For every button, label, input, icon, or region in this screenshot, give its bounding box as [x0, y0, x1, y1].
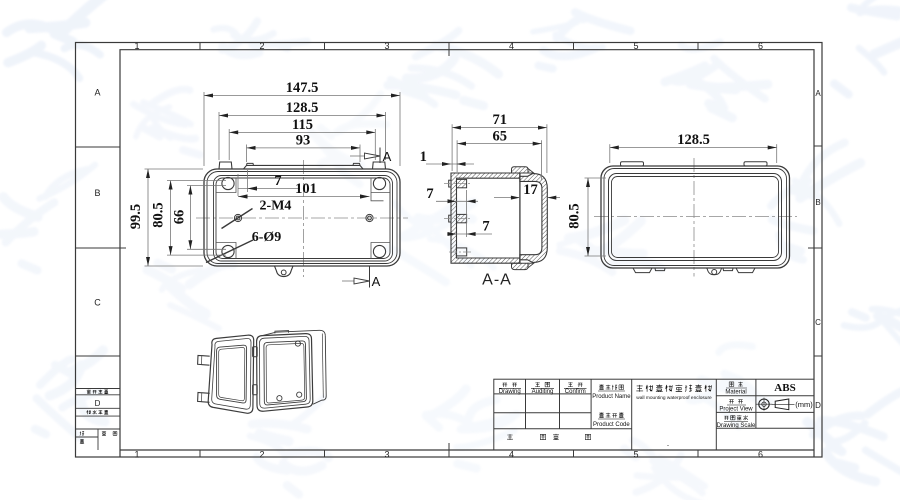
- svg-text:D: D: [95, 399, 101, 408]
- svg-text:101: 101: [295, 181, 317, 197]
- svg-text:D: D: [815, 401, 821, 410]
- svg-text:128.5: 128.5: [677, 132, 710, 148]
- svg-text:7: 7: [274, 173, 281, 189]
- svg-text:Confirm: Confirm: [565, 389, 586, 395]
- svg-text:ABS: ABS: [774, 382, 795, 394]
- svg-text:Drawing Scale: Drawing Scale: [717, 423, 756, 429]
- svg-text:80.5: 80.5: [567, 203, 583, 228]
- svg-text:C: C: [94, 298, 101, 308]
- svg-text:A-A: A-A: [482, 272, 512, 289]
- svg-text:6: 6: [758, 450, 763, 460]
- svg-text:6: 6: [758, 41, 763, 51]
- svg-text:2-M4: 2-M4: [260, 199, 292, 214]
- svg-text:Auditing: Auditing: [532, 389, 554, 395]
- svg-text:3: 3: [384, 450, 389, 460]
- svg-text:71: 71: [493, 112, 508, 128]
- svg-text:wall mounting waterproof enclo: wall mounting waterproof enclosure: [636, 395, 712, 401]
- svg-text:B: B: [815, 198, 820, 207]
- svg-text:3: 3: [384, 41, 389, 51]
- svg-text:80.5: 80.5: [151, 202, 167, 227]
- svg-text:6-Ø9: 6-Ø9: [252, 230, 282, 245]
- svg-text:B: B: [94, 188, 100, 198]
- svg-text:(mm): (mm): [795, 400, 813, 409]
- svg-text:A: A: [383, 149, 392, 164]
- svg-text:1: 1: [134, 450, 139, 460]
- svg-text:A: A: [815, 89, 821, 98]
- svg-text:Material: Material: [725, 390, 746, 396]
- svg-text:66: 66: [172, 210, 188, 225]
- svg-text:7: 7: [426, 186, 433, 202]
- svg-text:5: 5: [633, 450, 638, 460]
- svg-text:5: 5: [633, 41, 638, 51]
- svg-text:1: 1: [134, 41, 139, 51]
- svg-text:A: A: [94, 88, 100, 98]
- svg-text:2: 2: [259, 41, 264, 51]
- svg-text:7: 7: [482, 219, 489, 235]
- svg-text:Product Name: Product Name: [592, 394, 631, 400]
- svg-text:2: 2: [259, 450, 264, 460]
- svg-text:147.5: 147.5: [286, 80, 319, 96]
- svg-text:99.5: 99.5: [128, 204, 144, 229]
- svg-text:93: 93: [296, 133, 311, 149]
- svg-text:Drawing: Drawing: [499, 389, 521, 395]
- svg-text:115: 115: [292, 117, 313, 133]
- svg-text:17: 17: [523, 182, 538, 198]
- svg-text:4: 4: [509, 41, 514, 51]
- svg-text:65: 65: [493, 128, 508, 144]
- svg-text:C: C: [815, 318, 821, 327]
- svg-text:-: -: [667, 443, 669, 449]
- svg-text:4: 4: [509, 450, 514, 460]
- svg-text:Project View: Project View: [719, 407, 753, 413]
- svg-text:Product Code: Product Code: [593, 422, 630, 428]
- svg-text:A: A: [372, 274, 381, 289]
- svg-text:128.5: 128.5: [286, 100, 319, 116]
- svg-text:1: 1: [420, 149, 427, 165]
